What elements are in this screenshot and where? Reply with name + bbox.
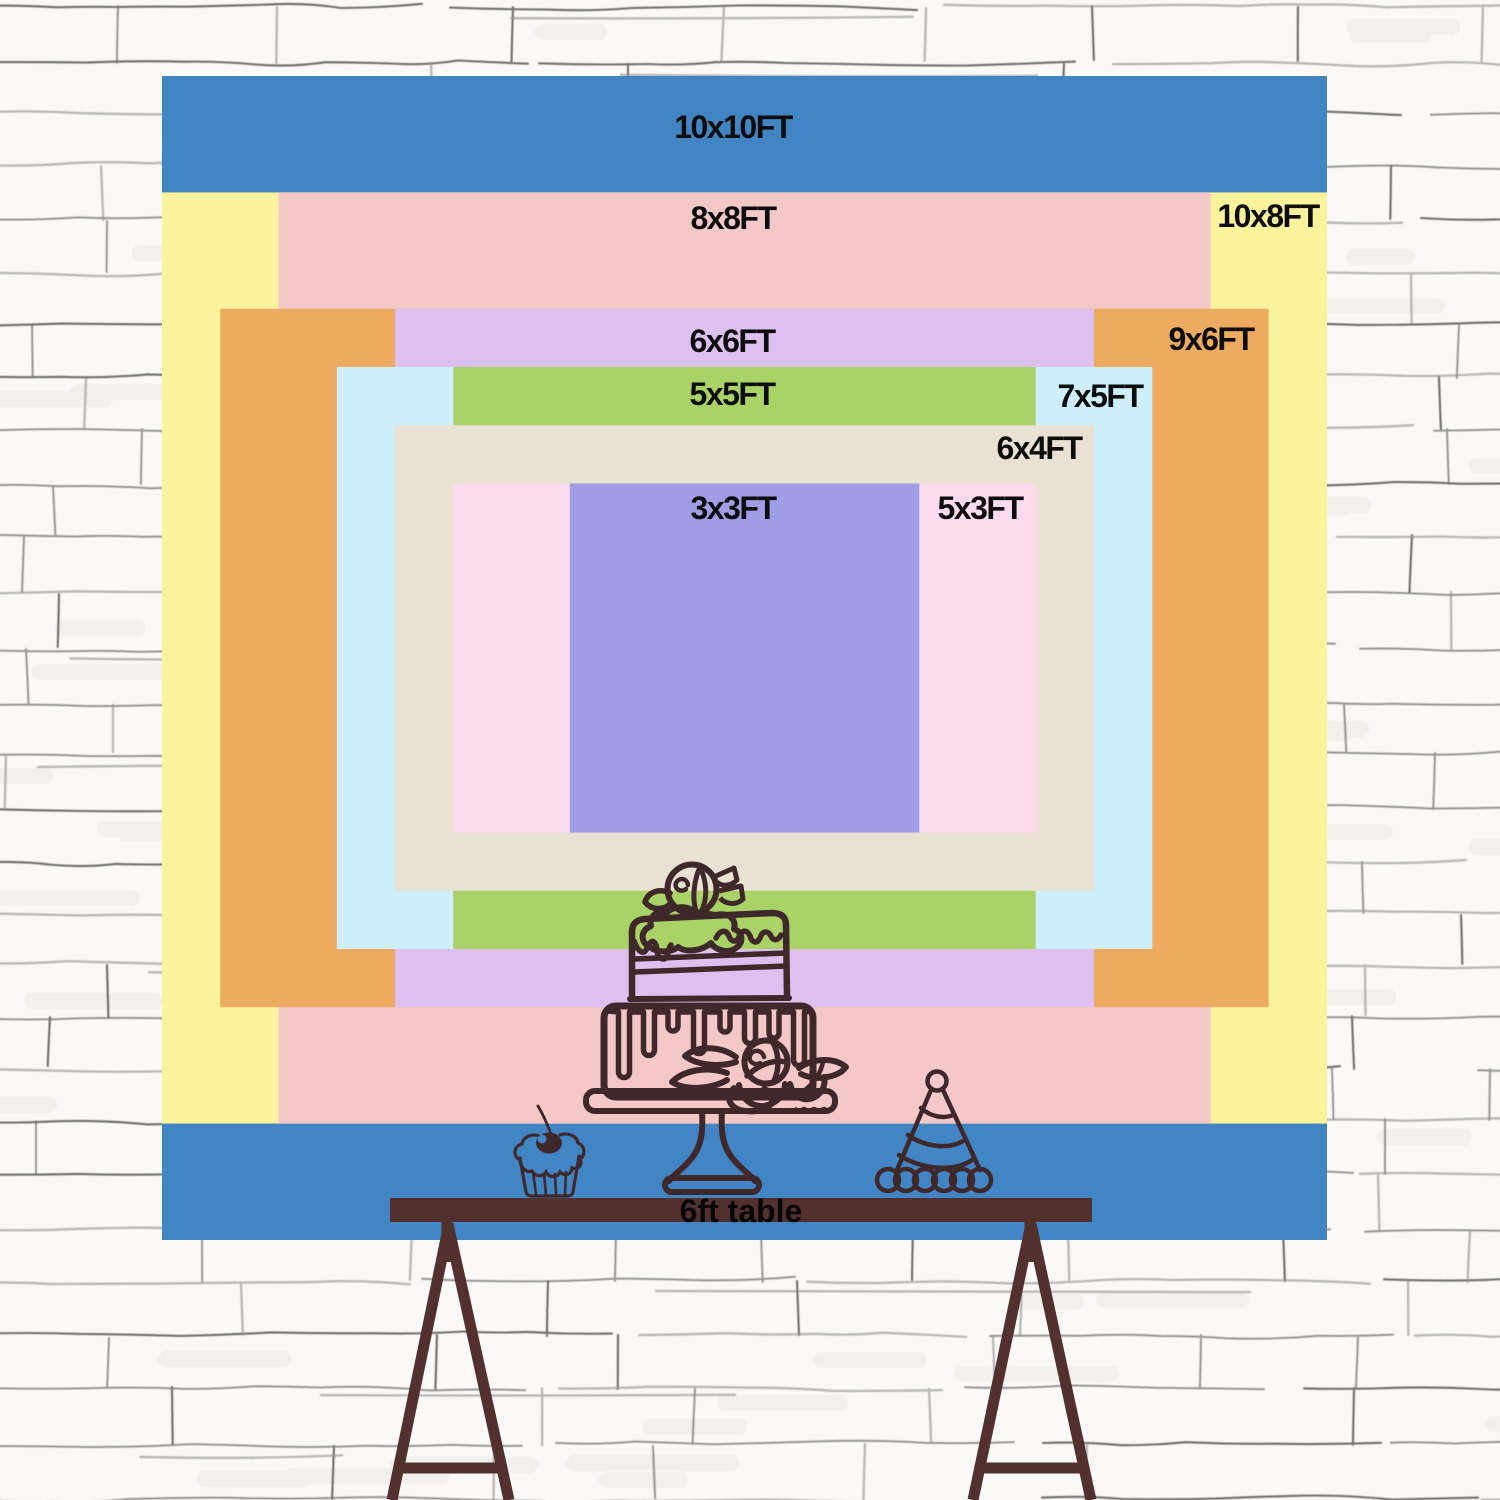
svg-text:6ft table: 6ft table (680, 1193, 803, 1229)
svg-text:5x5FT: 5x5FT (690, 376, 777, 412)
svg-text:3x3FT: 3x3FT (691, 490, 778, 526)
svg-text:10x10FT: 10x10FT (674, 109, 794, 145)
svg-text:9x6FT: 9x6FT (1169, 321, 1256, 357)
svg-text:6x6FT: 6x6FT (690, 323, 777, 359)
svg-text:10x8FT: 10x8FT (1217, 198, 1320, 234)
svg-text:5x3FT: 5x3FT (938, 490, 1025, 526)
svg-text:7x5FT: 7x5FT (1058, 378, 1145, 414)
svg-text:8x8FT: 8x8FT (691, 200, 778, 236)
svg-text:6x4FT: 6x4FT (997, 430, 1084, 466)
